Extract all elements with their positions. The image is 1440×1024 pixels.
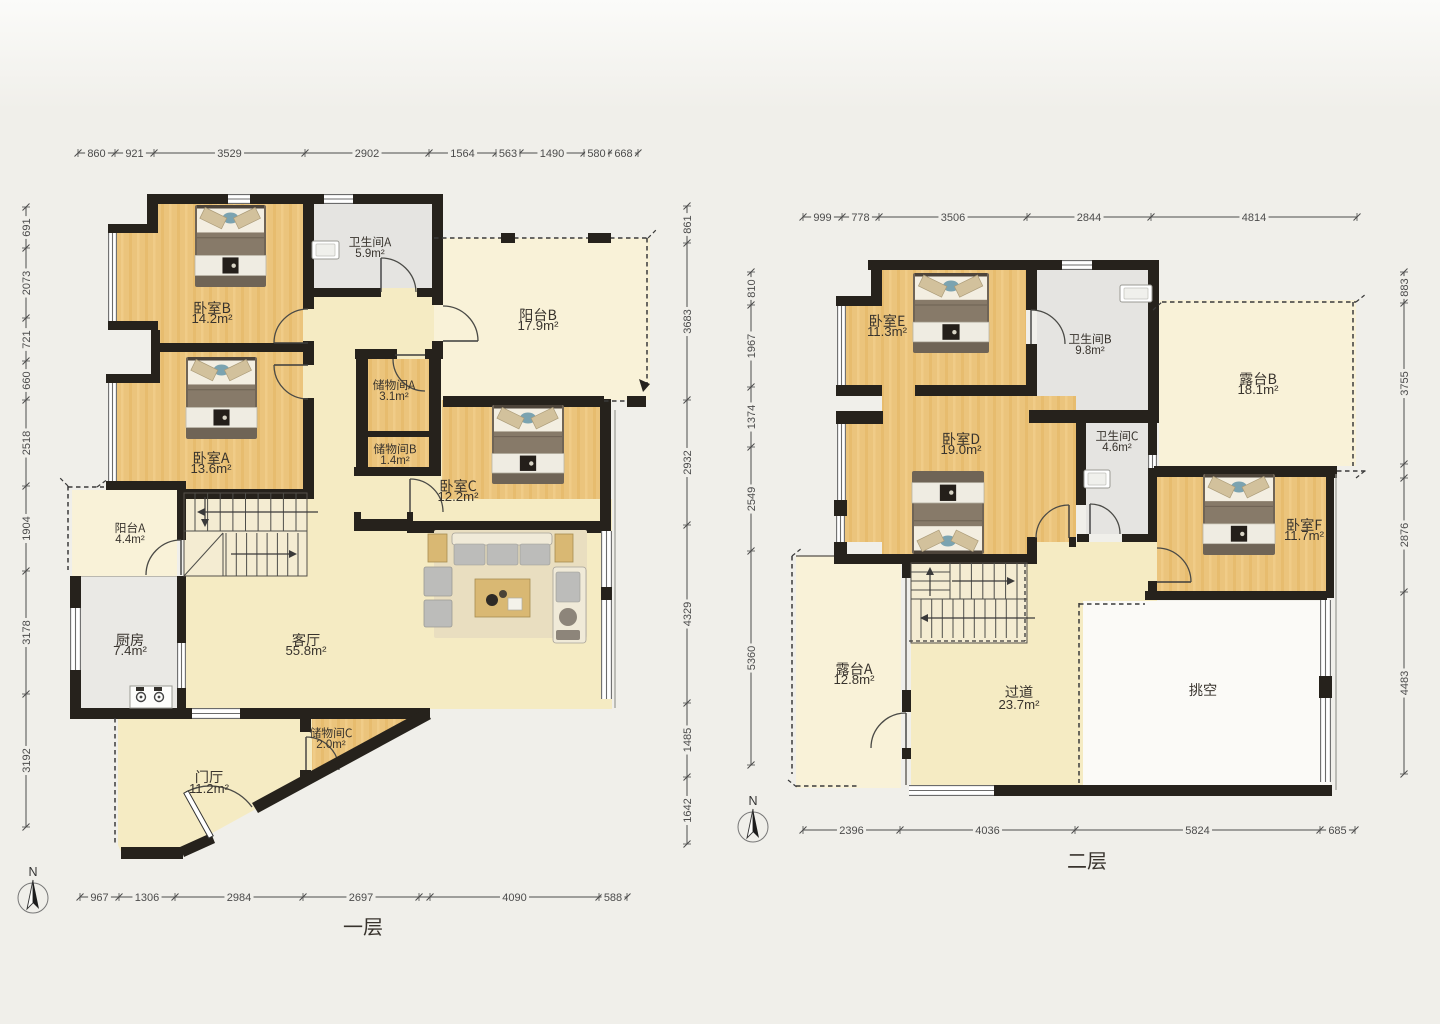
svg-text:5.9m²: 5.9m² [355, 248, 385, 260]
svg-text:2396: 2396 [839, 825, 863, 837]
svg-text:2844: 2844 [1077, 212, 1101, 224]
svg-text:4.6m²: 4.6m² [1102, 442, 1132, 454]
svg-text:3.1m²: 3.1m² [379, 391, 409, 403]
svg-text:2932: 2932 [682, 450, 694, 474]
svg-text:N: N [28, 865, 37, 879]
svg-text:2073: 2073 [21, 271, 33, 295]
svg-text:967: 967 [90, 892, 108, 904]
svg-text:3178: 3178 [21, 620, 33, 644]
svg-text:3506: 3506 [941, 212, 965, 224]
svg-text:1967: 1967 [746, 334, 758, 358]
svg-text:563: 563 [499, 148, 517, 160]
svg-text:2902: 2902 [355, 148, 379, 160]
svg-text:N: N [748, 794, 757, 808]
svg-text:4329: 4329 [682, 602, 694, 626]
svg-text:999: 999 [813, 212, 831, 224]
svg-text:13.6m²: 13.6m² [190, 461, 232, 476]
svg-text:55.8m²: 55.8m² [285, 643, 327, 658]
svg-text:921: 921 [125, 148, 143, 160]
svg-text:1374: 1374 [746, 405, 758, 429]
svg-text:3529: 3529 [217, 148, 241, 160]
svg-text:4036: 4036 [975, 825, 999, 837]
svg-text:2697: 2697 [349, 892, 373, 904]
svg-text:1642: 1642 [682, 798, 694, 822]
svg-text:17.9m²: 17.9m² [517, 318, 559, 333]
svg-text:1564: 1564 [450, 148, 474, 160]
svg-text:2549: 2549 [746, 487, 758, 511]
svg-text:14.2m²: 14.2m² [191, 311, 233, 326]
svg-text:1904: 1904 [21, 516, 33, 540]
svg-text:668: 668 [614, 148, 632, 160]
svg-text:11.3m²: 11.3m² [867, 324, 908, 339]
svg-text:5824: 5824 [1185, 825, 1209, 837]
svg-text:580: 580 [587, 148, 605, 160]
svg-text:12.8m²: 12.8m² [833, 672, 875, 687]
svg-text:861: 861 [682, 215, 694, 233]
svg-text:5360: 5360 [746, 646, 758, 670]
svg-text:778: 778 [851, 212, 869, 224]
svg-text:12.2m²: 12.2m² [437, 489, 479, 504]
svg-text:588: 588 [604, 892, 622, 904]
svg-text:1.4m²: 1.4m² [380, 455, 410, 467]
svg-text:1490: 1490 [540, 148, 564, 160]
svg-text:9.8m²: 9.8m² [1075, 345, 1105, 357]
svg-text:2876: 2876 [1399, 523, 1411, 547]
svg-text:1485: 1485 [682, 728, 694, 752]
svg-text:7.4m²: 7.4m² [113, 643, 147, 658]
svg-text:721: 721 [21, 330, 33, 348]
svg-text:860: 860 [87, 148, 105, 160]
svg-text:4.4m²: 4.4m² [115, 534, 145, 546]
svg-text:3192: 3192 [21, 748, 33, 772]
svg-text:11.2m²: 11.2m² [189, 781, 230, 796]
svg-text:3755: 3755 [1399, 371, 1411, 395]
svg-text:4483: 4483 [1399, 671, 1411, 695]
svg-text:3683: 3683 [682, 309, 694, 333]
svg-text:4090: 4090 [502, 892, 526, 904]
svg-text:810: 810 [746, 279, 758, 297]
svg-text:11.7m²: 11.7m² [1284, 528, 1325, 543]
svg-text:691: 691 [21, 218, 33, 236]
svg-text:18.1m²: 18.1m² [1237, 382, 1279, 397]
svg-text:23.7m²: 23.7m² [998, 697, 1040, 712]
svg-text:4814: 4814 [1242, 212, 1266, 224]
svg-text:2984: 2984 [227, 892, 251, 904]
svg-text:660: 660 [21, 371, 33, 389]
svg-text:2.0m²: 2.0m² [316, 739, 346, 751]
svg-text:883: 883 [1399, 278, 1411, 296]
svg-text:19.0m²: 19.0m² [940, 442, 982, 457]
svg-text:1306: 1306 [135, 892, 159, 904]
svg-text:2518: 2518 [21, 431, 33, 455]
svg-text:685: 685 [1328, 825, 1346, 837]
